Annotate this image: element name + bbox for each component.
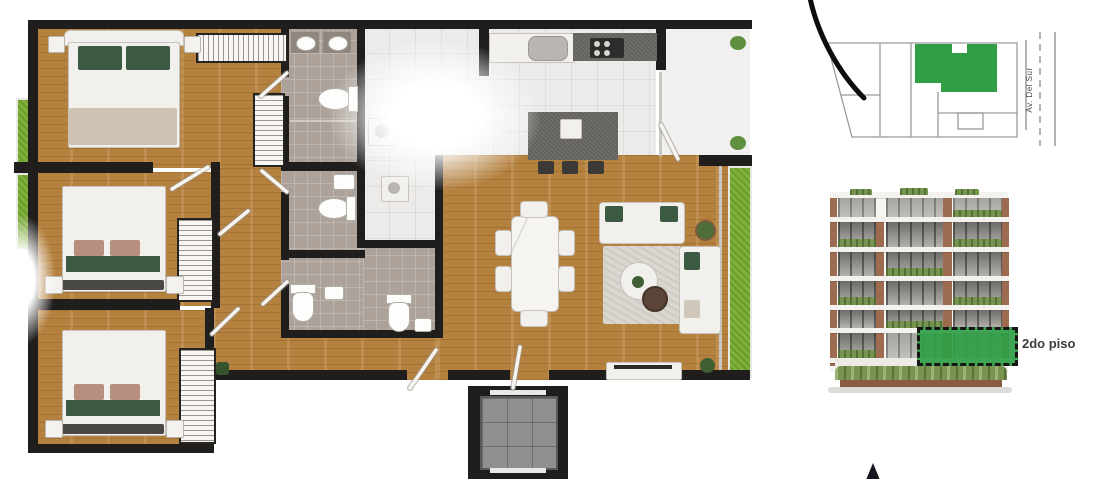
win-f3-mid (886, 281, 943, 305)
street-label: Av. Del Sur (1025, 67, 1034, 112)
win-f2-left (838, 310, 876, 328)
elevation-pier-midleft (876, 222, 884, 366)
elevation-ground-shadow (828, 387, 1012, 393)
highlighted-unit (915, 44, 997, 92)
planter-f4-mid (886, 268, 943, 276)
planter-f1-left (838, 350, 876, 358)
planter-f3-right (953, 297, 1002, 305)
win-f6-mid (886, 198, 943, 217)
win-f6-left (838, 198, 876, 217)
floor-plan (0, 0, 770, 479)
win-f4-right (953, 252, 1002, 276)
win-f5-mid (886, 222, 943, 247)
north-arrow-icon (866, 463, 880, 479)
roof-greenery-3 (955, 189, 979, 195)
planter-f3-left (838, 297, 876, 305)
roof-greenery-2 (900, 188, 928, 195)
win-f2-right (953, 310, 1002, 328)
site-plan: Av. Del Sur (795, 0, 1075, 160)
elevation-pier-left (830, 198, 837, 366)
elevation-planter-box (840, 380, 1002, 387)
win-f4-left (838, 252, 876, 276)
second-floor-highlight (917, 327, 1018, 366)
building-elevation (820, 186, 1020, 398)
second-floor-label: 2do piso (1022, 336, 1075, 351)
elevation-shrubs (835, 366, 1007, 380)
planter-f5-right (953, 239, 1002, 247)
door-swings (0, 0, 770, 479)
roof-greenery-1 (850, 189, 872, 195)
leader-curve (810, 0, 864, 98)
planter-f5-left (838, 239, 876, 247)
real-estate-plan-slide: Av. Del Sur (0, 0, 1110, 479)
planter-f6-right (953, 210, 1002, 217)
